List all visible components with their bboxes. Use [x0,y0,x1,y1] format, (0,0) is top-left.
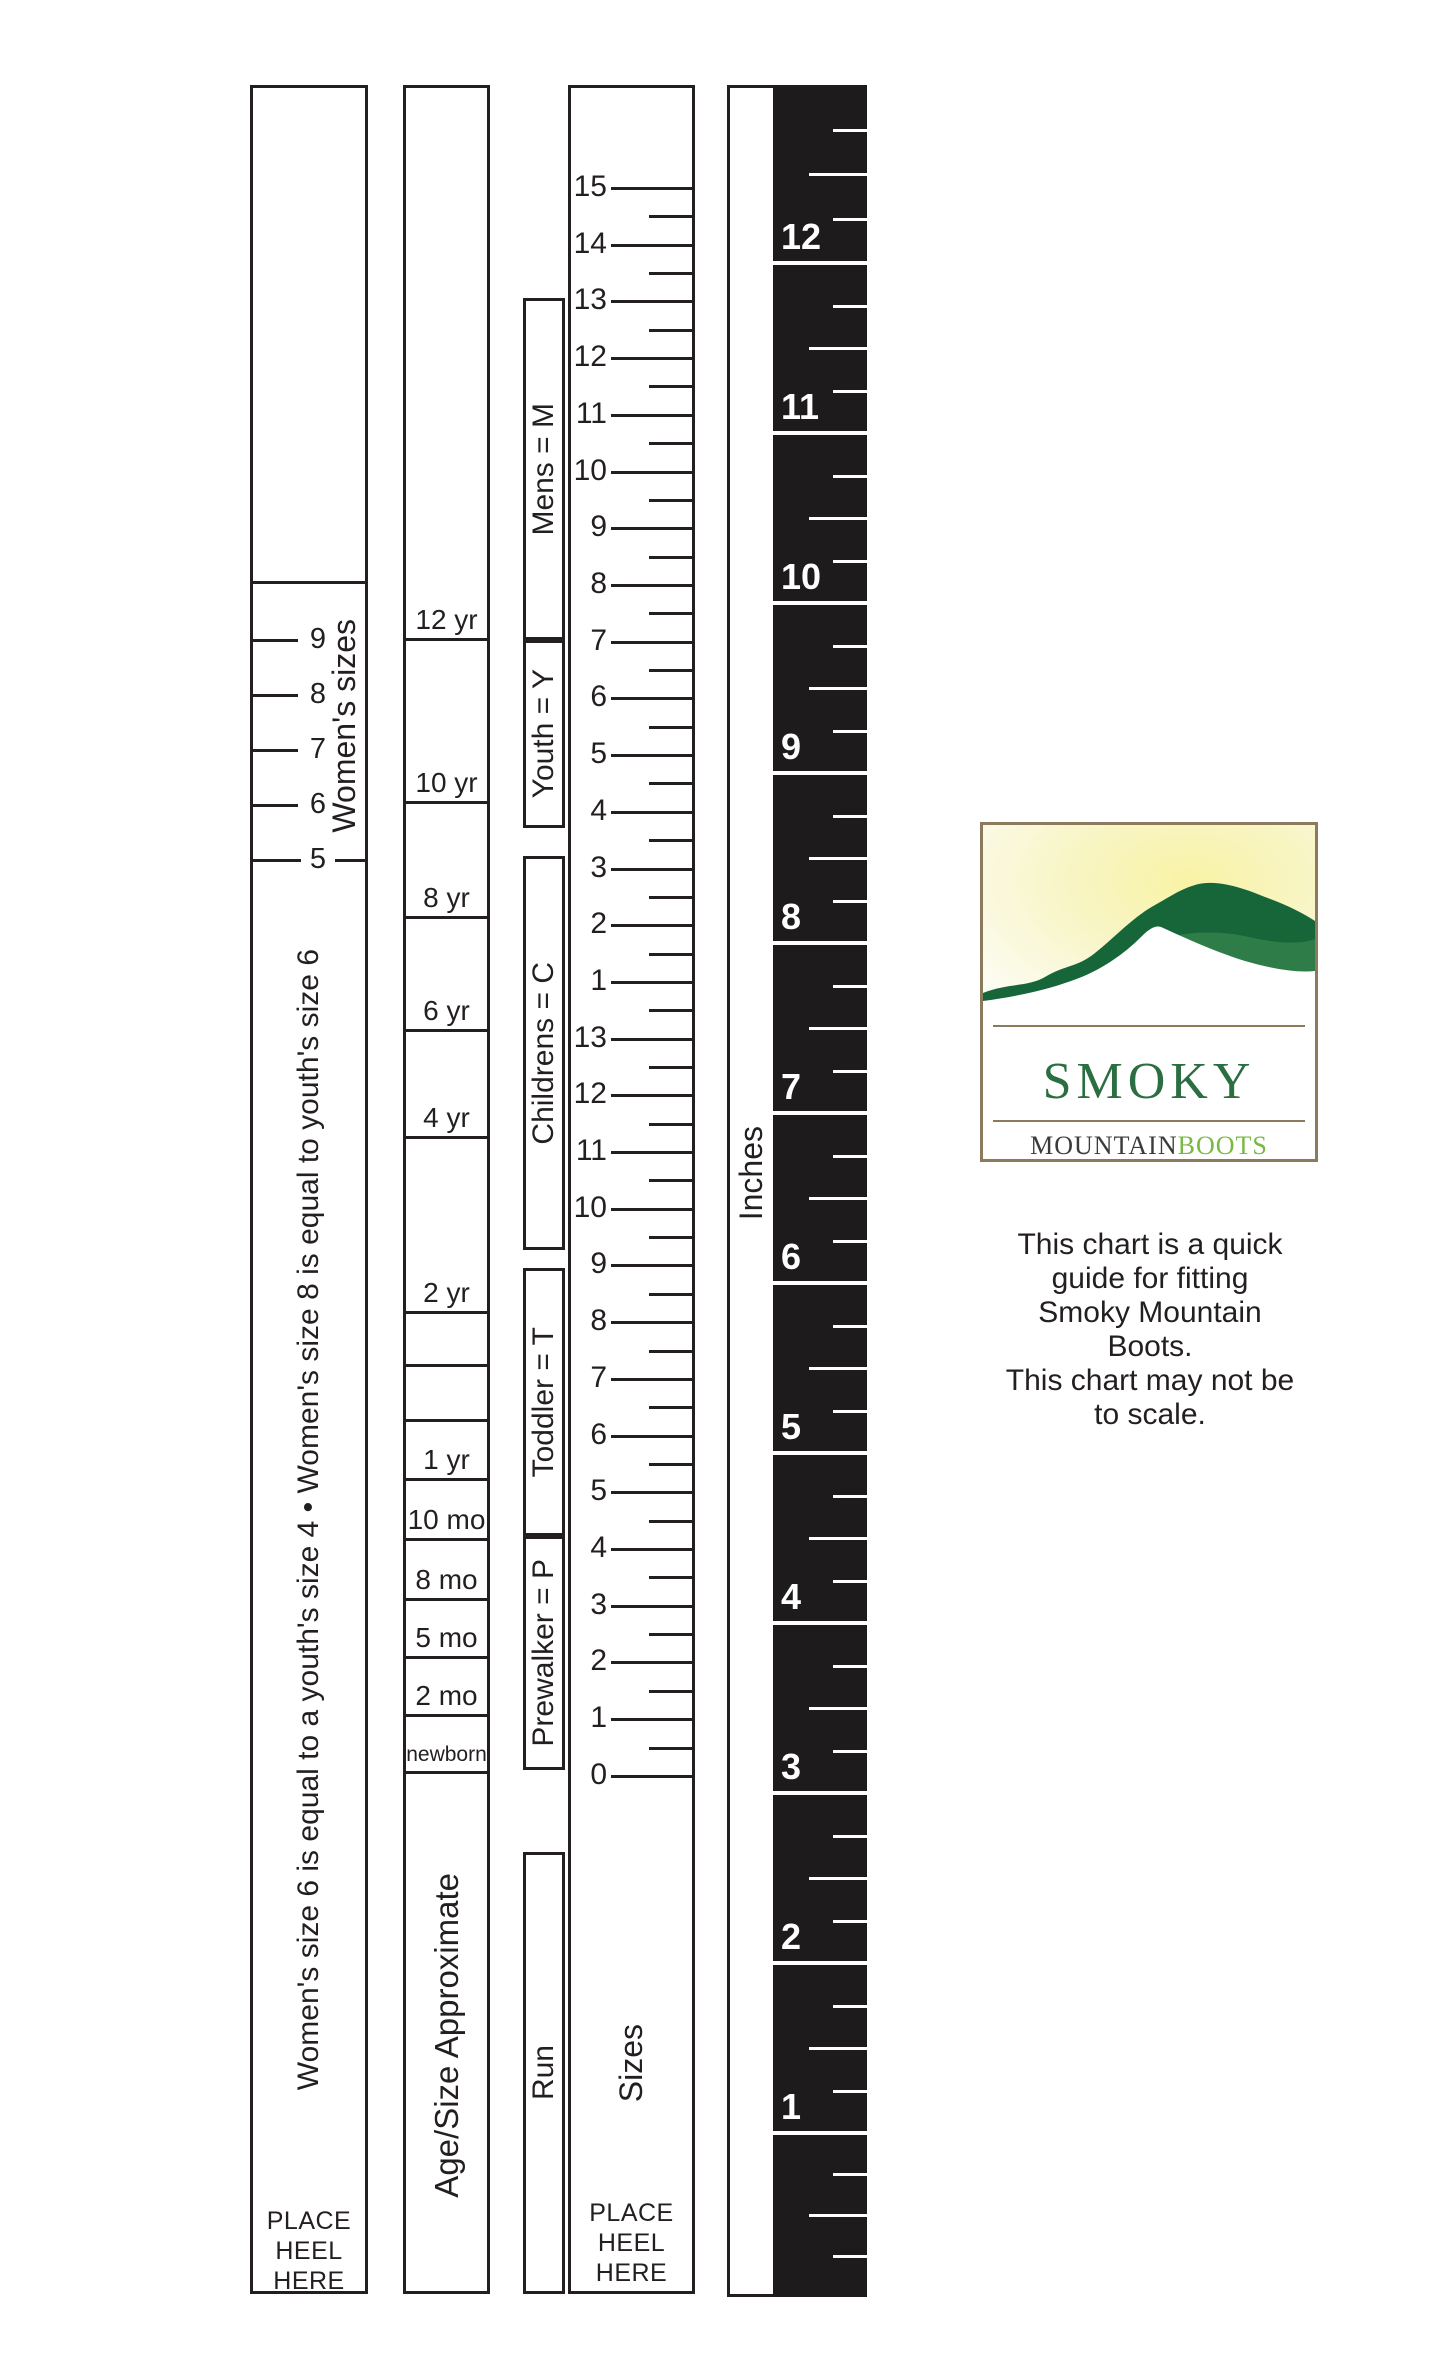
disclaimer-text: This chart is a quick guide for fitting … [950,1228,1350,1432]
sizes-major-tick [611,754,692,757]
sizes-minor-tick [649,896,692,899]
sizes-tick-label: 4 [571,796,607,826]
run-category-box: Mens = M [523,298,565,640]
sizes-major-tick [611,357,692,360]
sizes-minor-tick [649,1690,692,1693]
sizes-major-tick [611,1264,692,1267]
womens-tick [250,639,298,642]
sizes-major-tick [611,1548,692,1551]
sizes-minor-tick [649,782,692,785]
sizes-minor-tick [649,385,692,388]
inch-number: 10 [781,557,821,597]
age-cell-label: 10 mo [406,1504,487,1536]
inch-half-tick [809,517,867,520]
inch-quarter-tick [833,1665,867,1668]
sizes-major-tick [611,244,692,247]
inch-half-tick [809,347,867,350]
inch-line [773,1111,867,1115]
sizes-tick-label: 5 [571,739,607,769]
sizes-major-tick [611,584,692,587]
inch-quarter-tick [833,305,867,308]
inch-number: 1 [781,2087,801,2127]
sizes-tick-label: 13 [571,285,607,315]
sizes-major-tick [611,414,692,417]
inch-line [773,601,867,605]
age-cell-divider [406,1771,487,1774]
age-cell-label: 6 yr [406,995,487,1027]
age-cell-divider [406,1598,487,1601]
sizes-tick-label: 8 [571,1306,607,1336]
sizes-minor-tick [649,612,692,615]
logo-word-boots: Boots [1178,1121,1268,1164]
sizes-title: Sizes [613,2024,650,2102]
sizes-minor-tick [649,1633,692,1636]
sizes-major-tick [611,1038,692,1041]
inch-quarter-tick [833,2005,867,2008]
inch-line [773,941,867,945]
sizes-minor-tick [649,839,692,842]
inch-quarter-tick [833,1070,867,1073]
age-cell-label: 5 mo [406,1622,487,1654]
inch-half-tick [809,2214,867,2217]
sizes-major-tick [611,1321,692,1324]
womens-tick [250,804,298,807]
sizes-major-tick [611,1094,692,1097]
inch-line [773,2131,867,2135]
inch-quarter-tick [833,985,867,988]
inch-quarter-tick [833,475,867,478]
age-cell-divider [406,1478,487,1481]
sizes-minor-tick [649,1123,692,1126]
sizes-tick-label: 3 [571,1590,607,1620]
inch-number: 7 [781,1067,801,1107]
inch-quarter-tick [833,645,867,648]
smoky-mountain-boots-logo: Smoky MountainBoots [980,822,1318,1162]
inch-line [773,261,867,265]
womens-place-heel-label: PLACE HEEL HERE [253,2206,365,2296]
sizes-major-tick [611,1605,692,1608]
inch-number: 2 [781,1917,801,1957]
sizes-minor-tick [649,953,692,956]
womens-equivalence-note: Women's size 6 is equal to a youth's siz… [292,949,326,2090]
inches-ruler: 121110987654321 [773,85,867,2297]
age-cell-label: 4 yr [406,1102,487,1134]
age-cell-label: 1 yr [406,1444,487,1476]
womens-tick [250,694,298,697]
sizes-minor-tick [649,1179,692,1182]
womens-tick [250,749,298,752]
sizes-major-tick [611,868,692,871]
age-cell-divider [406,1538,487,1541]
age-cell-label: 8 yr [406,882,487,914]
sizes-major-tick [611,811,692,814]
sizes-major-tick [611,1208,692,1211]
sizes-minor-tick [649,499,692,502]
sizes-tick-label: 15 [571,172,607,202]
age-cell-divider [406,1714,487,1717]
age-cell-divider [406,1029,487,1032]
sizes-tick-label: 6 [571,682,607,712]
sizes-major-tick [611,1491,692,1494]
inch-quarter-tick [833,2090,867,2093]
inch-quarter-tick [833,900,867,903]
inch-quarter-tick [833,1410,867,1413]
age-cell-label: 2 yr [406,1277,487,1309]
run-title-box: Run [523,1852,565,2294]
sizes-major-tick [611,641,692,644]
sizes-minor-tick [649,1520,692,1523]
age-cell-label: newborn [406,1743,487,1767]
age-cell-divider [406,916,487,919]
womens-sizes-title: Women's sizes [326,619,363,833]
sizes-tick-label: 11 [571,1136,607,1166]
run-category-box-label: Mens = M [527,403,561,536]
inch-half-tick [809,1707,867,1710]
inch-line [773,1791,867,1795]
inch-number: 3 [781,1747,801,1787]
inch-half-tick [809,1877,867,1880]
sizes-tick-label: 6 [571,1420,607,1450]
sizes-major-tick [611,1151,692,1154]
inches-title: Inches [733,1126,770,1220]
sizes-tick-label: 9 [571,1249,607,1279]
inch-line [773,1961,867,1965]
inch-half-tick [809,1027,867,1030]
sizes-major-tick [611,187,692,190]
inch-quarter-tick [833,1155,867,1158]
sizes-tick-label: 12 [571,342,607,372]
age-cell-label: 10 yr [406,767,487,799]
sizes-minor-tick [649,215,692,218]
inch-quarter-tick [833,218,867,221]
sizes-tick-label: 1 [571,966,607,996]
inch-quarter-tick [833,815,867,818]
inch-quarter-tick [833,730,867,733]
sizes-minor-tick [649,1576,692,1579]
run-category-box-label: Prewalker = P [527,1559,561,1747]
sizes-tick-label: 7 [571,626,607,656]
sizes-minor-tick [649,1406,692,1409]
inch-quarter-tick [833,1580,867,1583]
inch-quarter-tick [833,390,867,393]
age-cell-divider [406,1419,487,1422]
sizes-tick-label: 2 [571,909,607,939]
sizes-minor-tick [649,1747,692,1750]
sizes-major-tick [611,981,692,984]
sizes-ruler-column: 151413121110987654321131211109876543210 … [568,85,695,2294]
inch-quarter-tick [833,1240,867,1243]
sizes-major-tick [611,697,692,700]
age-size-column: 12 yr10 yr8 yr6 yr4 yr2 yr1 yr10 mo8 mo5… [403,85,490,2294]
sizes-tick-label: 4 [571,1533,607,1563]
inch-number: 9 [781,727,801,767]
sizes-tick-label: 3 [571,853,607,883]
inch-line [773,1451,867,1455]
inch-line [773,1621,867,1625]
age-cell-divider [406,1136,487,1139]
run-category-box: Childrens = C [523,856,565,1250]
age-cell-divider [406,1364,487,1367]
age-cell-label: 8 mo [406,1564,487,1596]
sizes-minor-tick [649,726,692,729]
sizes-tick-label: 2 [571,1646,607,1676]
inch-quarter-tick [833,1920,867,1923]
inch-quarter-tick [833,129,867,132]
run-category-box: Prewalker = P [523,1536,565,1770]
sizes-major-tick [611,471,692,474]
sizes-minor-tick [649,329,692,332]
womens-top-divider [253,581,365,584]
age-cell-divider [406,801,487,804]
inch-quarter-tick [833,1325,867,1328]
sizes-minor-tick [649,1236,692,1239]
womens-boundary-label: 5 [301,844,335,874]
sizes-major-tick [611,1718,692,1721]
sizes-tick-label: 1 [571,1703,607,1733]
sizes-major-tick [611,1435,692,1438]
sizes-major-tick [611,1661,692,1664]
age-size-title: Age/Size Approximate [428,1873,466,2198]
size-chart-page: 98765 Women's sizes Women's size 6 is eq… [0,0,1445,2380]
sizes-minor-tick [649,1009,692,1012]
sizes-major-tick [611,300,692,303]
inch-quarter-tick [833,1750,867,1753]
inch-half-tick [809,2047,867,2050]
logo-word-smoky: Smoky [983,1029,1315,1119]
inch-half-tick [809,687,867,690]
age-cell-divider [406,638,487,641]
run-category-box-label: Childrens = C [527,962,561,1145]
sizes-tick-label: 10 [571,456,607,486]
sizes-minor-tick [649,1463,692,1466]
sizes-major-tick [611,1378,692,1381]
sizes-minor-tick [649,556,692,559]
sizes-minor-tick [649,669,692,672]
sizes-minor-tick [649,1293,692,1296]
sizes-major-tick [611,924,692,927]
sizes-tick-label: 0 [571,1760,607,1790]
inch-number: 8 [781,897,801,937]
inch-number: 12 [781,217,821,257]
sizes-tick-label: 11 [571,399,607,429]
sizes-major-tick [611,527,692,530]
run-title-box-label: Run [527,2045,561,2100]
sizes-tick-label: 7 [571,1363,607,1393]
inch-half-tick [809,1197,867,1200]
inch-number: 5 [781,1407,801,1447]
age-cell-label: 2 mo [406,1680,487,1712]
inch-number: 4 [781,1577,801,1617]
inch-quarter-tick [833,1495,867,1498]
womens-sizes-column: 98765 Women's sizes Women's size 6 is eq… [250,85,368,2294]
age-cell-divider [406,1311,487,1314]
logo-word-mountain: Mountain [1030,1121,1177,1164]
age-cell-divider [406,1656,487,1659]
inch-number: 6 [781,1237,801,1277]
sizes-place-heel-label: PLACE HEEL HERE [571,2198,692,2288]
sizes-minor-tick [649,1350,692,1353]
run-category-box-label: Toddler = T [527,1327,561,1477]
inch-half-tick [809,173,867,176]
inch-line [773,771,867,775]
sizes-tick-label: 13 [571,1023,607,1053]
sizes-tick-label: 12 [571,1079,607,1109]
inch-quarter-tick [833,1835,867,1838]
sizes-minor-tick [649,272,692,275]
run-category-box: Youth = Y [523,640,565,828]
inch-quarter-tick [833,2173,867,2176]
logo-divider-top [993,1025,1305,1027]
age-cell-label: 12 yr [406,604,487,636]
run-category-box: Toddler = T [523,1268,565,1536]
inch-half-tick [809,1537,867,1540]
mountain-sunrise-illustration [983,825,1315,1023]
inch-line [773,431,867,435]
sizes-major-tick [611,1775,692,1778]
inch-half-tick [809,857,867,860]
inch-quarter-tick [833,560,867,563]
sizes-tick-label: 14 [571,229,607,259]
inch-number: 11 [781,387,819,427]
sizes-tick-label: 10 [571,1193,607,1223]
sizes-tick-label: 9 [571,512,607,542]
sizes-minor-tick [649,1066,692,1069]
sizes-tick-label: 5 [571,1476,607,1506]
inch-quarter-tick [833,2255,867,2258]
sizes-minor-tick [649,442,692,445]
sizes-tick-label: 8 [571,569,607,599]
inch-half-tick [809,1367,867,1370]
logo-word-mountainboots: MountainBoots [983,1121,1315,1161]
run-category-box-label: Youth = Y [527,669,561,798]
inch-line [773,1281,867,1285]
